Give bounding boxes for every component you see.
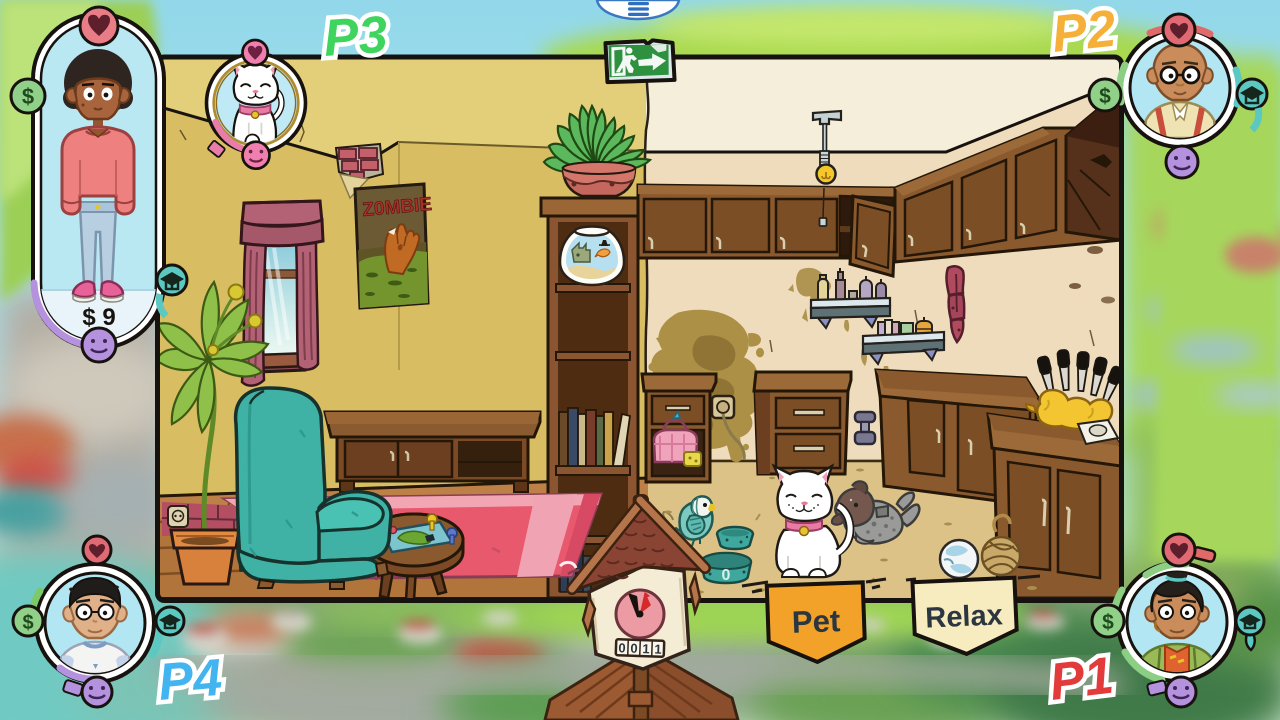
svg-text:P4: P4: [156, 649, 224, 712]
svg-text:$: $: [1102, 611, 1114, 634]
svg-text:0: 0: [722, 567, 731, 584]
svg-text:$: $: [22, 612, 33, 634]
svg-text:0: 0: [630, 641, 638, 656]
svg-text:Relax: Relax: [925, 599, 1004, 634]
svg-text:P2: P2: [1049, 0, 1118, 64]
svg-text:Pet: Pet: [791, 603, 840, 640]
svg-text:$: $: [22, 84, 34, 109]
svg-text:1: 1: [642, 641, 650, 656]
svg-text:P3: P3: [322, 6, 390, 68]
svg-text:P1: P1: [1046, 647, 1116, 712]
svg-text:1: 1: [654, 642, 662, 657]
svg-text:0: 0: [618, 640, 626, 655]
svg-text:$: $: [1099, 85, 1111, 108]
